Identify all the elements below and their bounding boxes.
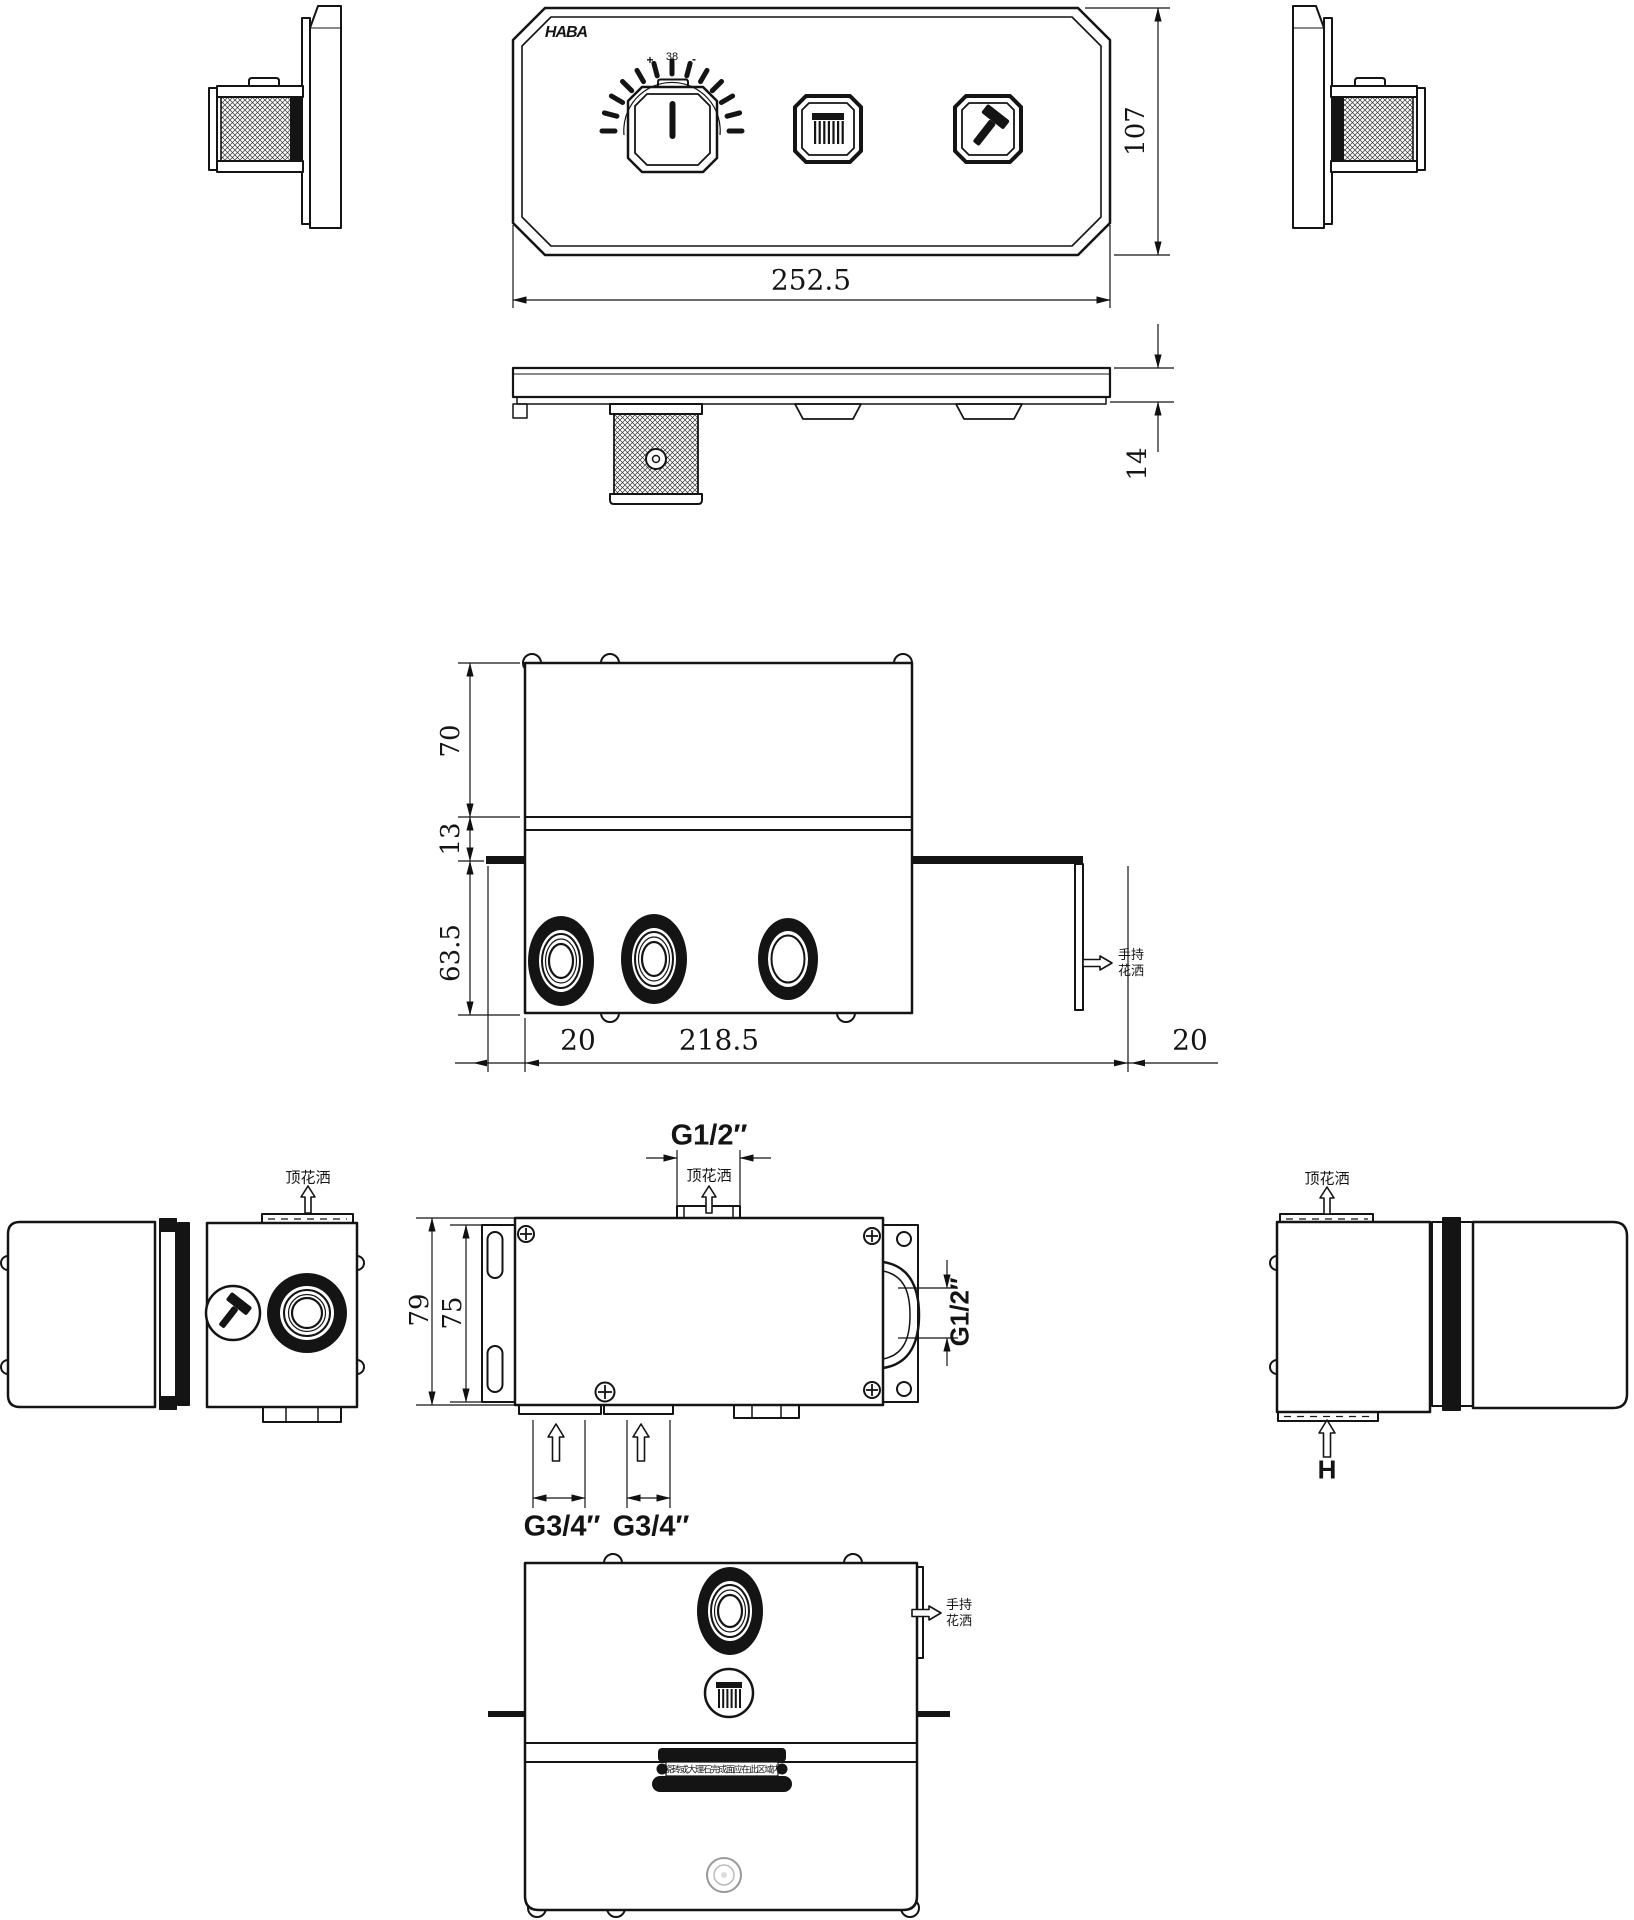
end-view-left — [1, 1214, 364, 1422]
dim-body-flange: 13 — [436, 822, 466, 855]
label-top-shower-back: 顶花洒 — [686, 1165, 731, 1186]
trim-bottom-front-view — [488, 1554, 950, 1917]
dim-panel-height: 107 — [1121, 106, 1151, 156]
hand-shower-arrow — [1083, 956, 1112, 970]
top-shower-port — [267, 1273, 347, 1353]
dial-minus-label: - — [692, 52, 696, 66]
dim-body-lower: 63.5 — [436, 924, 466, 982]
rain-shower-button — [795, 96, 861, 162]
dim-panel-width: 252.5 — [771, 264, 851, 297]
side-outlet-boss — [883, 1262, 919, 1368]
port-hot-inlet — [528, 916, 594, 1006]
port-top-outlet-label: G1/2″ — [671, 1120, 748, 1153]
end-view-right — [1270, 1214, 1627, 1421]
dim-body-upper: 70 — [436, 724, 466, 757]
trim-panel-front-view — [513, 8, 1110, 255]
top-shower-port — [697, 1567, 763, 1655]
hand-shower-icon — [964, 104, 1010, 152]
brand-logo: HABA — [545, 24, 587, 42]
label-top-shower-right: 顶花洒 — [1304, 1168, 1349, 1189]
mounting-bracket-right — [882, 1225, 918, 1402]
dim-port-span: 218.5 — [679, 1024, 759, 1057]
side-view-right — [1293, 6, 1425, 228]
top-shower-arrow — [301, 1186, 315, 1213]
dial-plus-label: + — [646, 53, 653, 67]
port-outlet — [758, 918, 818, 1000]
top-shower-arrow — [1320, 1187, 1334, 1214]
port-side-outlet-label: G1/2″ — [945, 1278, 976, 1347]
top-shower-arrow — [702, 1186, 716, 1213]
port-cold-inlet — [621, 914, 687, 1004]
inlet-arrow-right — [633, 1424, 649, 1461]
port-inlet-right-label: G3/4″ — [613, 1511, 690, 1544]
inlet-arrow-left — [548, 1424, 564, 1461]
label-hand-shower-mid: 手持花洒 — [1118, 947, 1146, 980]
label-top-shower-left: 顶花洒 — [285, 1167, 330, 1188]
technical-drawing-sheet: HABA + 38 - 252.5 107 14 70 13 63.5 20 2… — [0, 0, 1634, 1920]
side-view-left — [209, 6, 341, 228]
plan-top-view — [513, 368, 1110, 504]
dim-panel-thickness: 14 — [1123, 447, 1153, 480]
height-ref-arrow — [1319, 1420, 1335, 1457]
dim-bracket-outer: 79 — [405, 1293, 435, 1326]
knob-hatch-section — [221, 97, 293, 161]
dim-offset-left: 20 — [560, 1024, 596, 1057]
dim-bracket-inner: 75 — [438, 1296, 468, 1329]
dial-temperature-label: 38 — [666, 51, 678, 63]
rough-in-upper-view — [486, 654, 1083, 1022]
label-height-ref: H — [1318, 1455, 1337, 1486]
hand-shower-button — [955, 96, 1021, 162]
rough-in-back-view — [482, 1206, 919, 1418]
label-tile-note: 瓷砖或大理石完成面应在此区域内 — [664, 1763, 780, 1776]
knob-hatch-section — [1341, 97, 1413, 161]
label-hand-shower-bottom: 手持花洒 — [946, 1597, 974, 1630]
rain-shower-icon — [812, 113, 844, 144]
port-inlet-left-label: G3/4″ — [524, 1511, 601, 1544]
dim-offset-right: 20 — [1172, 1024, 1208, 1057]
